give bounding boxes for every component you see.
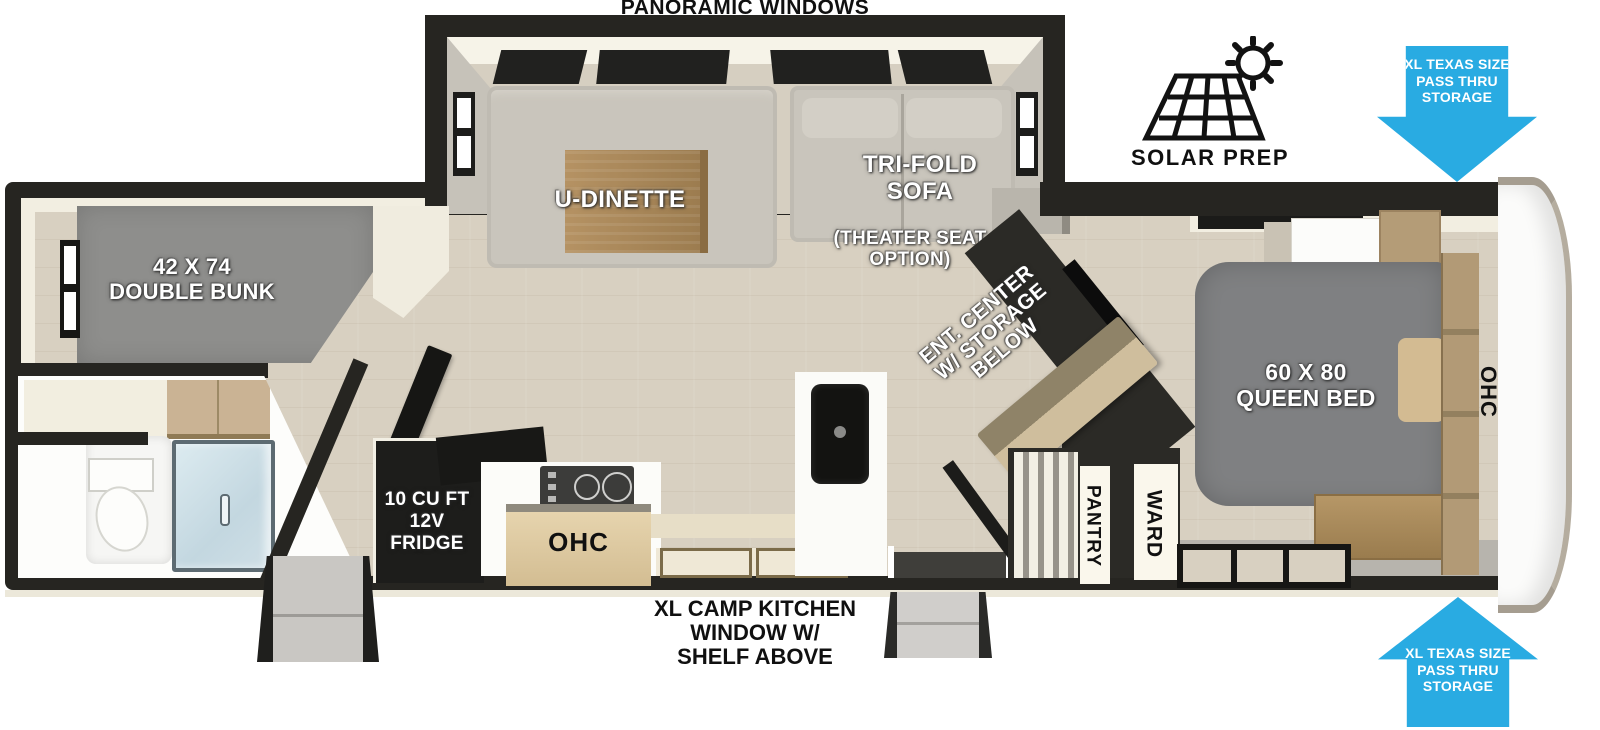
u-dinette-label: U-DINETTE: [520, 187, 720, 214]
pantry-shelves: [1014, 452, 1078, 578]
bedroom-ohc-wardrobe: [1441, 253, 1479, 575]
bedroom-window-icon: [1177, 544, 1351, 588]
ward-label: WARD: [1142, 474, 1165, 574]
bath-cabinet: [167, 380, 270, 439]
kitchen-ohc-label: OHC: [516, 528, 641, 556]
camp-kitchen-label: XL CAMP KITCHEN WINDOW W/ SHELF ABOVE: [605, 597, 905, 668]
entry-steps-rear: [257, 556, 379, 662]
bedroom-cabinet-white: [1291, 218, 1381, 268]
shower: [172, 440, 275, 572]
pass-thru-bottom-label: XL TEXAS SIZE PASS THRU STORAGE: [1378, 645, 1538, 695]
bunk-window-icon: [60, 240, 80, 338]
body-underside: [5, 590, 1502, 597]
panoramic-window-icon: [898, 50, 992, 84]
bedroom-cabinet-small: [1264, 222, 1292, 266]
bedroom-ohc-label: OHC: [1476, 352, 1500, 432]
sofa-cushion: [802, 98, 898, 138]
entry-steps-main: [884, 592, 992, 658]
front-cap: [1498, 177, 1572, 613]
bath-divider-wall: [16, 432, 148, 445]
queen-bed-label: 60 X 80 QUEEN BED: [1206, 360, 1406, 412]
door-jamb: [888, 546, 894, 578]
entry-doorway: [893, 552, 1011, 578]
solar-panel-icon: [1140, 36, 1290, 148]
panoramic-window-icon: [596, 50, 730, 84]
bedroom-ohc-right: [1379, 210, 1441, 270]
kitchen-sink-icon: [811, 384, 869, 484]
panoramic-window-icon: [770, 50, 892, 84]
slide-window-left-icon: [453, 92, 475, 176]
pantry-label: PANTRY: [1082, 472, 1103, 580]
fridge-label: 10 CU FT 12V FRIDGE: [377, 489, 477, 555]
pass-thru-arrow-top: XL TEXAS SIZE PASS THRU STORAGE: [1377, 46, 1537, 182]
pass-thru-top-label: XL TEXAS SIZE PASS THRU STORAGE: [1377, 56, 1537, 106]
left-wall-face: [21, 198, 35, 363]
panoramic-window-icon: [493, 50, 587, 84]
double-bunk-label: 42 X 74 DOUBLE BUNK: [87, 255, 297, 304]
bath-counter: [24, 380, 169, 438]
sofa-cushion: [906, 98, 1002, 138]
bath-wall: [16, 363, 268, 378]
pass-thru-arrow-bottom: XL TEXAS SIZE PASS THRU STORAGE: [1378, 597, 1538, 727]
shower-handle: [220, 494, 230, 526]
rv-floorplan: PANORAMIC WINDOWS SOLAR PREP XL TEXAS SI…: [0, 0, 1600, 730]
solar-prep-label: SOLAR PREP: [1110, 146, 1310, 170]
tri-fold-sofa-label: TRI-FOLD SOFA: [820, 152, 1020, 206]
